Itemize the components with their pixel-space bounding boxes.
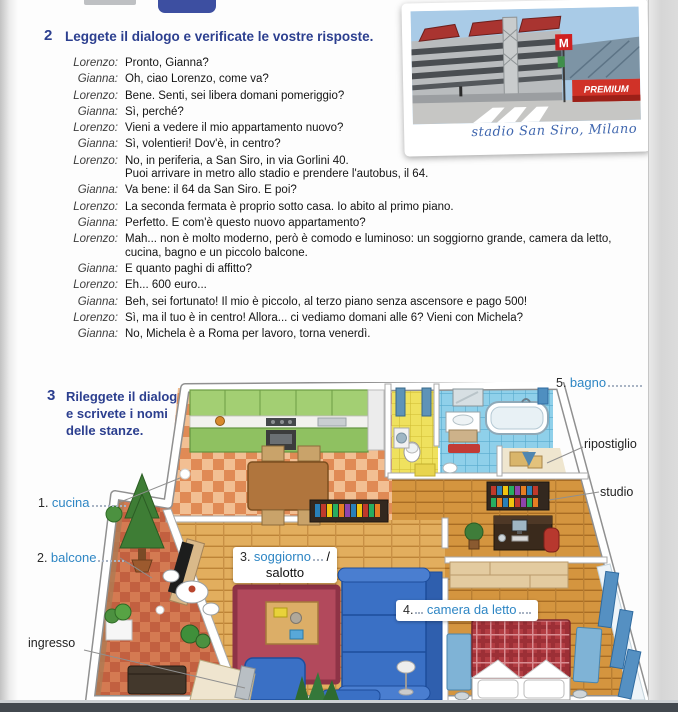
label-balcone: 2. balcone	[37, 550, 124, 565]
label-soggiorno-box: 3. soggiorno / salotto	[233, 547, 337, 583]
write-line[interactable]	[313, 550, 323, 561]
exercise2-title: Leggete il dialogo e verificate le vostr…	[65, 28, 373, 45]
label-number: 1.	[38, 496, 48, 510]
dialogue-row: Lorenzo:La seconda fermata è proprio sot…	[62, 201, 620, 214]
dialogue-row: Gianna:Beh, sei fortunato! Il mio è picc…	[62, 296, 620, 309]
label-number: 5.	[556, 376, 566, 390]
write-line[interactable]	[608, 376, 642, 387]
dialogue-text: Sì, ma il tuo è in centro! Allora... ci …	[118, 312, 619, 325]
audio-button-cropped[interactable]	[158, 0, 216, 13]
speaker-name: Gianna:	[62, 296, 118, 309]
stadium-illustration: M PREMIUM	[411, 7, 641, 125]
write-line[interactable]	[415, 603, 423, 614]
speaker-name: Lorenzo:	[62, 279, 118, 292]
label-cucina: 1. cucina	[38, 495, 126, 510]
metro-sign-letter: M	[559, 36, 569, 50]
speaker-name: Lorenzo:	[62, 312, 118, 325]
speaker-name: Gianna:	[62, 184, 118, 197]
dialogue-row: Gianna:E quanto paghi di affitto?	[62, 263, 620, 276]
write-line[interactable]	[519, 603, 531, 614]
answer-balcone[interactable]: balcone	[51, 550, 97, 565]
dialogue-row: Gianna:Va bene: il 64 da San Siro. E poi…	[62, 184, 620, 197]
dialogue-row: Gianna:No, Michela è a Roma per lavoro, …	[62, 328, 620, 341]
write-line[interactable]	[92, 496, 126, 507]
photo-caption: stadio San Siro, Milano	[471, 122, 637, 140]
dialogue-text: Beh, sei fortunato! Il mio è piccolo, al…	[118, 296, 619, 309]
page-left-edge	[0, 0, 18, 712]
page-right-edge	[648, 0, 678, 712]
stadium-photo: M PREMIUM	[411, 7, 641, 125]
speaker-name: Gianna:	[62, 217, 118, 230]
dialogue-row: Lorenzo:Sì, ma il tuo è in centro! Allor…	[62, 312, 620, 325]
speaker-name: Gianna:	[62, 106, 118, 119]
dialogue-row: Lorenzo:Mah... non è molto moderno, però…	[62, 233, 620, 260]
polaroid-photo: M PREMIUM stadio San Siro, Milano	[401, 0, 650, 157]
label-salotto: salotto	[240, 565, 330, 580]
label-number: 3.	[240, 550, 250, 564]
label-ingresso: ingresso	[28, 636, 75, 650]
dialogue-row: Lorenzo:Eh... 600 euro...	[62, 279, 620, 292]
dialogue-text: No, in periferia, a San Siro, in via Gor…	[118, 155, 619, 182]
speaker-name: Lorenzo:	[62, 90, 118, 103]
dialogue-text: Va bene: il 64 da San Siro. E poi?	[118, 184, 619, 197]
exercise3-number: 3	[47, 387, 55, 404]
speaker-name: Gianna:	[62, 263, 118, 276]
speaker-name: Lorenzo:	[62, 155, 118, 182]
dialogue-text: Mah... non è molto moderno, però è comod…	[118, 233, 619, 260]
exercise2-number: 2	[44, 27, 52, 44]
textbook-page: 2 Leggete il dialogo e verificate le vos…	[0, 0, 678, 712]
label-ripostiglio: ripostiglio	[584, 437, 637, 451]
answer-camera-da-letto[interactable]: camera da letto	[427, 602, 517, 617]
speaker-name: Lorenzo:	[62, 233, 118, 260]
speaker-name: Lorenzo:	[62, 122, 118, 135]
write-line[interactable]	[98, 551, 124, 562]
speaker-name: Lorenzo:	[62, 201, 118, 214]
dialogue-text: Eh... 600 euro...	[118, 279, 619, 292]
label-bagno: 5. bagno	[556, 375, 642, 390]
speaker-name: Gianna:	[62, 73, 118, 86]
label-number: 4.	[403, 603, 413, 617]
dialogue-text: Perfetto. E com'è questo nuovo appartame…	[118, 217, 619, 230]
answer-bagno[interactable]: bagno	[570, 375, 606, 390]
separator: /	[327, 550, 330, 564]
answer-cucina[interactable]: cucina	[52, 495, 90, 510]
dialogue-row: Gianna:Perfetto. E com'è questo nuovo ap…	[62, 217, 620, 230]
label-camera-box: 4. camera da letto	[396, 600, 538, 621]
speaker-name: Gianna:	[62, 138, 118, 151]
speaker-name: Gianna:	[62, 328, 118, 341]
speaker-name: Lorenzo:	[62, 57, 118, 70]
dialogue-text: No, Michela è a Roma per lavoro, torna v…	[118, 328, 619, 341]
label-studio: studio	[600, 485, 633, 499]
dialogue-row: Lorenzo:No, in periferia, a San Siro, in…	[62, 155, 620, 182]
premium-banner-text: PREMIUM	[584, 84, 630, 96]
dialogue-text: La seconda fermata è proprio sotto casa.…	[118, 201, 619, 214]
viewer-bottom-bar	[0, 703, 678, 712]
cropped-word-fragment	[84, 0, 136, 5]
label-number: 2.	[37, 551, 47, 565]
dialogue-text: E quanto paghi di affitto?	[118, 263, 619, 276]
floorplan-illustration	[70, 382, 652, 702]
answer-soggiorno[interactable]: soggiorno	[254, 549, 311, 564]
